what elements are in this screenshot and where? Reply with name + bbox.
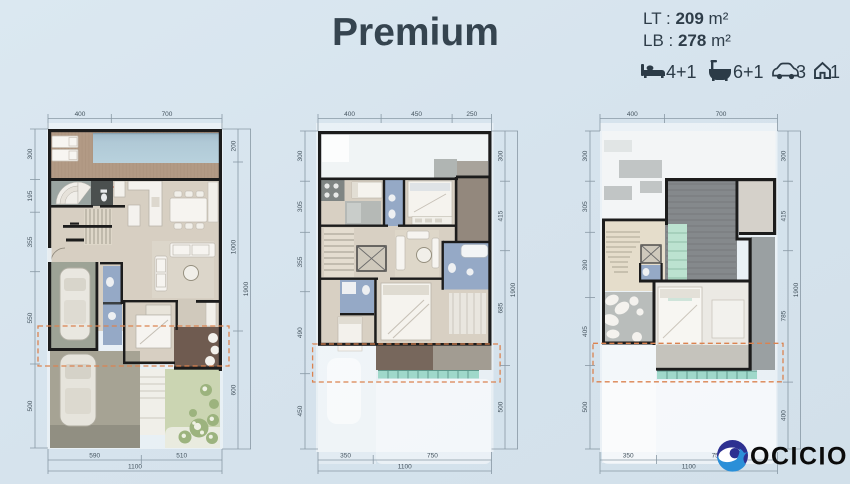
- svg-text:6+1: 6+1: [733, 62, 764, 82]
- svg-text:Premium: Premium: [332, 11, 499, 54]
- svg-text:500: 500: [582, 401, 589, 412]
- svg-text:450: 450: [297, 405, 304, 416]
- svg-text:350: 350: [340, 453, 351, 460]
- svg-text:600: 600: [231, 384, 238, 395]
- svg-text:1900: 1900: [510, 282, 517, 297]
- svg-text:LB : 278 m²: LB : 278 m²: [643, 31, 731, 50]
- svg-text:405: 405: [582, 326, 589, 337]
- svg-text:355: 355: [27, 236, 34, 247]
- svg-text:LT : 209 m²: LT : 209 m²: [643, 9, 729, 28]
- svg-text:700: 700: [162, 111, 173, 118]
- svg-text:750: 750: [427, 453, 438, 460]
- svg-text:1100: 1100: [682, 464, 696, 471]
- svg-text:OCICIO: OCICIO: [750, 443, 848, 471]
- svg-text:400: 400: [781, 410, 788, 421]
- svg-text:510: 510: [176, 453, 187, 460]
- svg-text:700: 700: [716, 111, 727, 118]
- svg-text:785: 785: [781, 310, 788, 321]
- svg-text:1000: 1000: [231, 239, 238, 254]
- svg-text:500: 500: [27, 400, 34, 411]
- svg-text:400: 400: [75, 111, 86, 118]
- svg-text:3: 3: [796, 62, 806, 82]
- svg-text:685: 685: [498, 302, 505, 313]
- svg-text:1100: 1100: [128, 464, 142, 471]
- svg-text:1: 1: [830, 62, 840, 82]
- svg-text:1900: 1900: [243, 281, 250, 296]
- svg-text:200: 200: [231, 140, 238, 151]
- svg-text:390: 390: [582, 259, 589, 270]
- svg-text:590: 590: [89, 453, 100, 460]
- svg-text:300: 300: [27, 148, 34, 159]
- svg-text:400: 400: [627, 111, 638, 118]
- svg-text:4+1: 4+1: [666, 62, 697, 82]
- svg-text:1100: 1100: [398, 464, 412, 471]
- svg-text:300: 300: [781, 150, 788, 161]
- svg-text:305: 305: [582, 201, 589, 212]
- svg-text:415: 415: [781, 210, 788, 221]
- svg-text:195: 195: [27, 190, 34, 201]
- svg-text:300: 300: [582, 150, 589, 161]
- svg-text:550: 550: [27, 312, 34, 323]
- svg-text:1900: 1900: [793, 282, 800, 297]
- svg-text:305: 305: [297, 201, 304, 212]
- svg-text:490: 490: [297, 327, 304, 338]
- svg-text:415: 415: [498, 210, 505, 221]
- svg-text:300: 300: [498, 150, 505, 161]
- svg-text:350: 350: [623, 453, 634, 460]
- svg-text:400: 400: [344, 111, 355, 118]
- svg-text:500: 500: [498, 401, 505, 412]
- svg-text:450: 450: [411, 111, 422, 118]
- svg-text:250: 250: [466, 111, 477, 118]
- svg-text:355: 355: [297, 256, 304, 267]
- svg-text:300: 300: [297, 150, 304, 161]
